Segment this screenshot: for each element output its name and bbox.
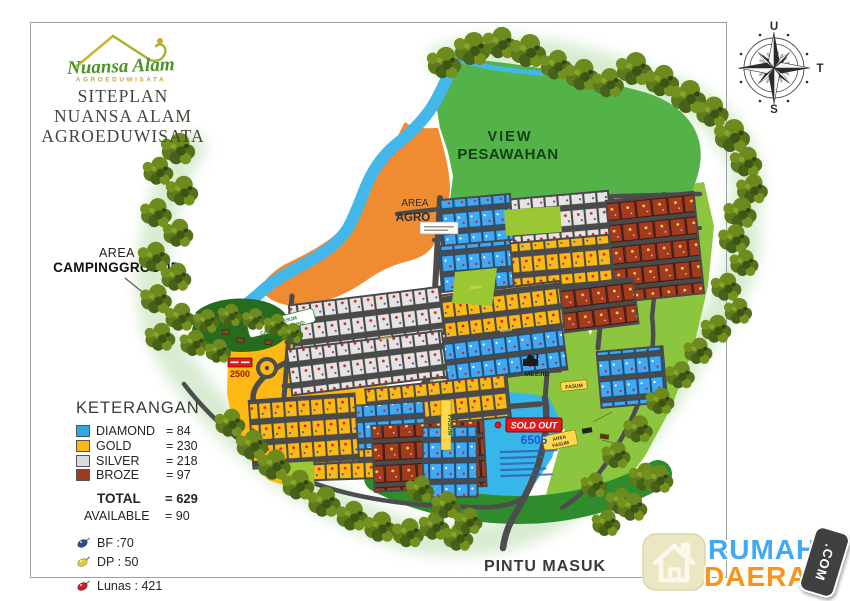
svg-text:2500: 2500 xyxy=(230,369,250,379)
silver-swatch xyxy=(76,455,90,467)
marker-dp: DP : 50 xyxy=(76,555,291,569)
legend: KETERANGAN DIAMOND = 84 GOLD = 230 SILVE… xyxy=(76,399,291,599)
poster-title: SITEPLAN NUANSA ALAM AGROEDUWISATA xyxy=(34,86,212,146)
legend-title: KETERANGAN xyxy=(76,399,291,418)
gold-swatch xyxy=(76,440,90,452)
svg-text:FASUM: FASUM xyxy=(446,415,452,436)
header: Nuansa Alam AGROEDUWISATA SITEPLAN NUANS… xyxy=(34,28,212,146)
title-line-2: NUANSA ALAM xyxy=(34,106,212,126)
title-line-3: AGROEDUWISATA xyxy=(34,126,212,146)
brand-word-rumah: RUMAH xyxy=(708,536,817,564)
rumahdaerah-watermark: RUMAH DAERAH .COM xyxy=(636,527,850,601)
roundabout xyxy=(258,359,276,377)
dp-pin-icon xyxy=(76,556,91,568)
sold-out-code: 6505 xyxy=(521,433,548,447)
marker-bf: BF :70 xyxy=(76,536,291,550)
legend-row-broze: BROZE = 97 xyxy=(76,469,291,482)
compass-north-label: U xyxy=(770,21,778,33)
agro-label-line1: AREA xyxy=(401,198,429,209)
legend-markers: BF :70 DP : 50 Lunas : 421 xyxy=(76,536,291,594)
bf-pin-icon xyxy=(76,537,91,549)
badge-2500: 2500 xyxy=(228,358,252,379)
svg-text:MESJID: MESJID xyxy=(525,371,550,378)
fasum-vertical-label: FASUM xyxy=(441,400,452,450)
legend-row-gold: GOLD = 230 xyxy=(76,440,291,453)
compass-south-label: S xyxy=(770,104,778,116)
compass-rose: U T S xyxy=(738,21,824,116)
nuansa-alam-logo: Nuansa Alam AGROEDUWISATA xyxy=(63,28,183,84)
logo-brand-text: Nuansa Alam xyxy=(66,54,175,79)
legend-row-silver: SILVER = 218 xyxy=(76,454,291,467)
compass-east-label: T xyxy=(816,63,823,75)
siteplan-poster: VIEW PESAWAHAN AREA AGRO AREA CAMPINGGRO… xyxy=(0,0,850,601)
broze-swatch xyxy=(76,469,90,481)
legend-available-row: AVAILABLE = 90 xyxy=(76,509,291,523)
view-label-line2: PESAWAHAN xyxy=(457,146,558,163)
campingground-label-line1: AREA xyxy=(99,246,135,260)
lunas-pin-icon xyxy=(76,580,91,592)
legend-total-row: TOTAL = 629 xyxy=(76,491,291,506)
title-line-1: SITEPLAN xyxy=(34,86,212,106)
pintu-masuk-label: PINTU MASUK xyxy=(484,558,606,575)
legend-row-diamond: DIAMOND = 84 xyxy=(76,425,291,438)
logo-brand-subtext: AGROEDUWISATA xyxy=(76,77,166,84)
svg-text:SOLD OUT: SOLD OUT xyxy=(511,421,559,431)
marker-lunas: Lunas : 421 xyxy=(76,579,291,593)
agro-small-sign xyxy=(420,222,458,234)
house-icon xyxy=(642,533,706,593)
view-label-line1: VIEW xyxy=(487,129,532,145)
diamond-swatch xyxy=(76,425,90,437)
